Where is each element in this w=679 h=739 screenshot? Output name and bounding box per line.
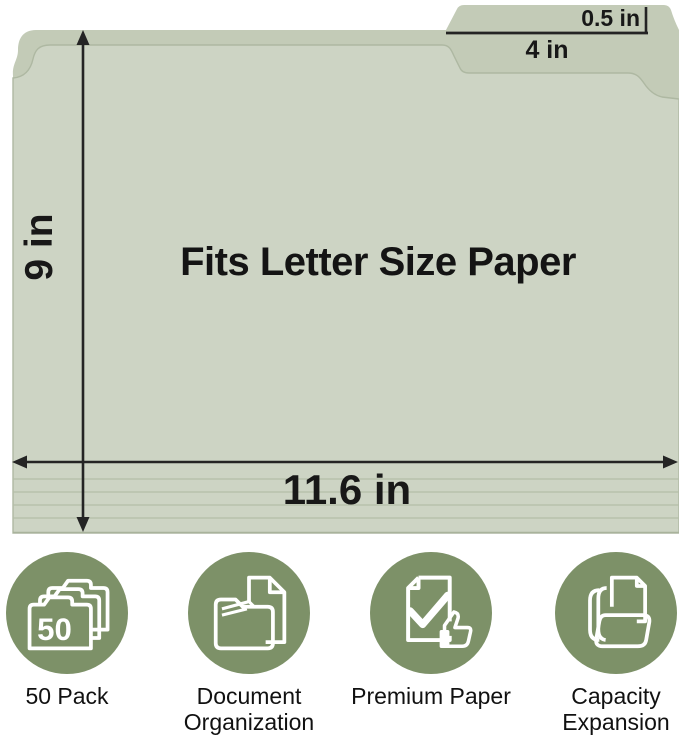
feature-row: 50 50 Pack Document Organization <box>0 552 679 739</box>
feature-label: Capacity Expansion <box>526 683 679 735</box>
expanding-folder-icon <box>564 561 668 665</box>
feature-capacity-expansion: Capacity Expansion <box>526 552 679 735</box>
height-label: 9 in <box>18 187 62 307</box>
folder-size-text: Fits Letter Size Paper <box>128 240 628 285</box>
feature-label: 50 Pack <box>0 683 157 709</box>
folder-stack-icon: 50 <box>15 561 119 665</box>
tab-width-label: 4 in <box>497 36 597 65</box>
feature-premium-paper: Premium Paper <box>341 552 521 709</box>
feature-document-organization: Document Organization <box>159 552 339 735</box>
feature-circle <box>555 552 677 674</box>
feature-circle: 50 <box>6 552 128 674</box>
feature-label: Document Organization <box>159 683 339 735</box>
width-label: 11.6 in <box>197 466 497 514</box>
folder-front-panel <box>13 45 679 533</box>
checkmark-thumbs-up-icon <box>379 561 483 665</box>
tab-height-label: 0.5 in <box>540 5 640 32</box>
feature-label: Premium Paper <box>341 683 521 709</box>
document-folder-icon <box>197 561 301 665</box>
pack-count-badge: 50 <box>37 612 72 647</box>
feature-circle <box>188 552 310 674</box>
feature-circle <box>370 552 492 674</box>
feature-50-pack: 50 50 Pack <box>0 552 157 709</box>
product-diagram: 0.5 in 4 in 9 in Fits Letter Size Paper … <box>0 0 679 739</box>
